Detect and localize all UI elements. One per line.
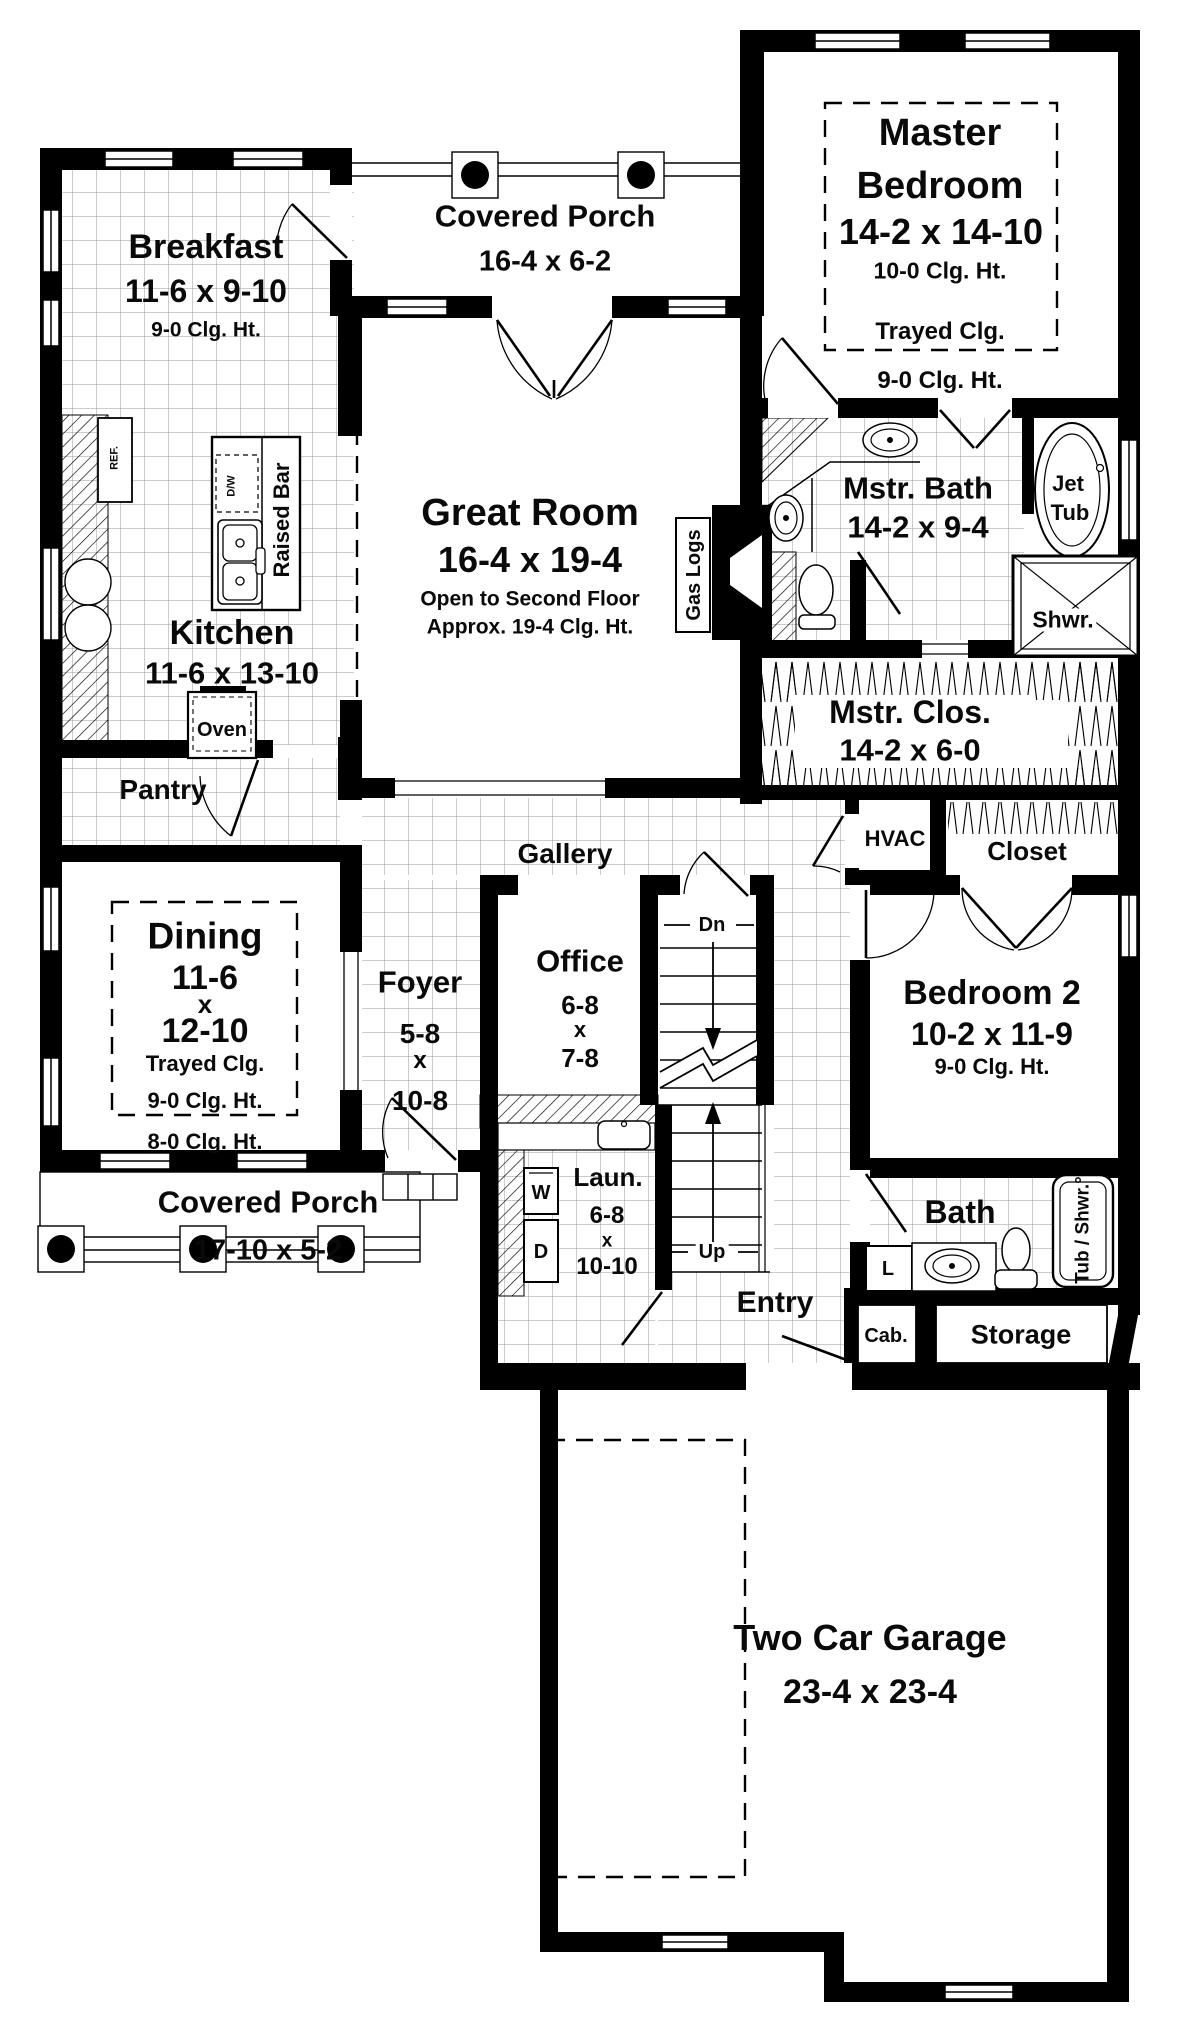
gas-logs-label: Gas Logs <box>684 529 704 620</box>
master-bedroom-trayed-label: Trayed Clg. <box>875 320 1004 344</box>
foyer-x-label: x <box>413 1049 426 1073</box>
master-bedroom-ceiling2-label: 9-0 Clg. Ht. <box>877 369 1002 393</box>
oven-label: Oven <box>197 720 247 740</box>
dryer-label: D <box>534 1242 548 1262</box>
office-x-label: x <box>574 1019 586 1041</box>
laundry-dim2-label: 10-10 <box>576 1255 637 1279</box>
master-closet-dims-label: 14-2 x 6-0 <box>839 735 980 766</box>
garage-dims-label: 23-4 x 23-4 <box>783 1675 957 1709</box>
great-room-note2-label: Approx. 19-4 Clg. Ht. <box>427 617 634 638</box>
covered-porch-bottom-label: Covered Porch <box>158 1187 379 1218</box>
bedroom2-ceiling-label: 9-0 Clg. Ht. <box>935 1056 1050 1078</box>
cabinet-label: Cab. <box>864 1326 907 1346</box>
refrigerator-label: REF. <box>110 446 121 470</box>
master-bedroom-label-2: Bedroom <box>857 167 1024 205</box>
breakfast-room-label: Breakfast <box>129 230 284 264</box>
tub-shower-label: Tub / Shwr.° <box>1074 1176 1093 1284</box>
bedroom2-label: Bedroom 2 <box>903 976 1081 1010</box>
dining-trayed-label: Trayed Clg. <box>146 1053 265 1075</box>
bath2-label: Bath <box>924 1196 995 1228</box>
office-label: Office <box>536 946 624 977</box>
dining-label: Dining <box>147 918 262 955</box>
covered-porch-top-label: Covered Porch <box>435 201 656 232</box>
linen-label: L <box>882 1259 894 1279</box>
stairs-dn-label: Dn <box>696 915 729 935</box>
office-dim1-label: 6-8 <box>561 992 599 1018</box>
master-closet-label: Mstr. Clos. <box>829 696 991 728</box>
dishwasher-label: D/W <box>227 475 238 496</box>
foyer-dim1-label: 5-8 <box>400 1020 440 1048</box>
jet-tub-label-2: Tub <box>1051 502 1090 524</box>
laundry-label: Laun. <box>573 1164 642 1190</box>
stairs <box>658 925 770 1272</box>
shower-label: Shwr. <box>1029 609 1096 632</box>
office-dim2-label: 7-8 <box>561 1045 599 1071</box>
master-bedroom-label-1: Master <box>879 114 1002 152</box>
foyer-label: Foyer <box>378 967 462 998</box>
covered-porch-top-dims-label: 16-4 x 6-2 <box>479 248 611 277</box>
closet-label: Closet <box>984 838 1069 864</box>
floor-plan: Breakfast 11-6 x 9-10 9-0 Clg. Ht. Cover… <box>0 0 1200 2040</box>
kitchen-dims-label: 11-6 x 13-10 <box>145 658 319 689</box>
storage-label: Storage <box>971 1322 1072 1349</box>
dining-ceiling-label: 9-0 Clg. Ht. <box>148 1090 263 1112</box>
stairs-up-label: Up <box>696 1242 729 1262</box>
breakfast-ceiling-label: 9-0 Clg. Ht. <box>151 320 261 341</box>
raised-bar-label: Raised Bar <box>271 463 293 578</box>
master-bedroom-ceiling-label: 10-0 Clg. Ht. <box>874 260 1007 283</box>
master-bath-dims-label: 14-2 x 9-4 <box>847 512 988 543</box>
washer-label: W <box>532 1183 551 1203</box>
hvac-label: HVAC <box>862 828 929 850</box>
garage-label: Two Car Garage <box>733 1620 1006 1656</box>
great-room-note1-label: Open to Second Floor <box>420 589 639 610</box>
master-bath-label: Mstr. Bath <box>843 473 993 504</box>
laundry-x-label: x <box>602 1232 613 1251</box>
foyer-dim2-label: 10-8 <box>392 1087 448 1115</box>
gallery-label: Gallery <box>518 840 613 868</box>
covered-porch-bottom-dims-label: 17-10 x 5-2 <box>194 1237 342 1266</box>
dining-ceiling2-label: 8-0 Clg. Ht. <box>148 1131 263 1153</box>
dining-dim2-label: 12-10 <box>162 1014 249 1048</box>
pantry-label: Pantry <box>119 776 206 804</box>
jet-tub-label-1: Jet <box>1052 473 1084 495</box>
laundry-dim1-label: 6-8 <box>590 1204 625 1228</box>
bedroom2-dims-label: 10-2 x 11-9 <box>911 1018 1073 1050</box>
great-room-label: Great Room <box>421 494 638 532</box>
breakfast-dims-label: 11-6 x 9-10 <box>125 275 287 307</box>
entry-label: Entry <box>737 1288 814 1318</box>
great-room-dims-label: 16-4 x 19-4 <box>438 542 622 578</box>
master-bedroom-dims-label: 14-2 x 14-10 <box>839 214 1043 250</box>
kitchen-label: Kitchen <box>170 616 295 650</box>
